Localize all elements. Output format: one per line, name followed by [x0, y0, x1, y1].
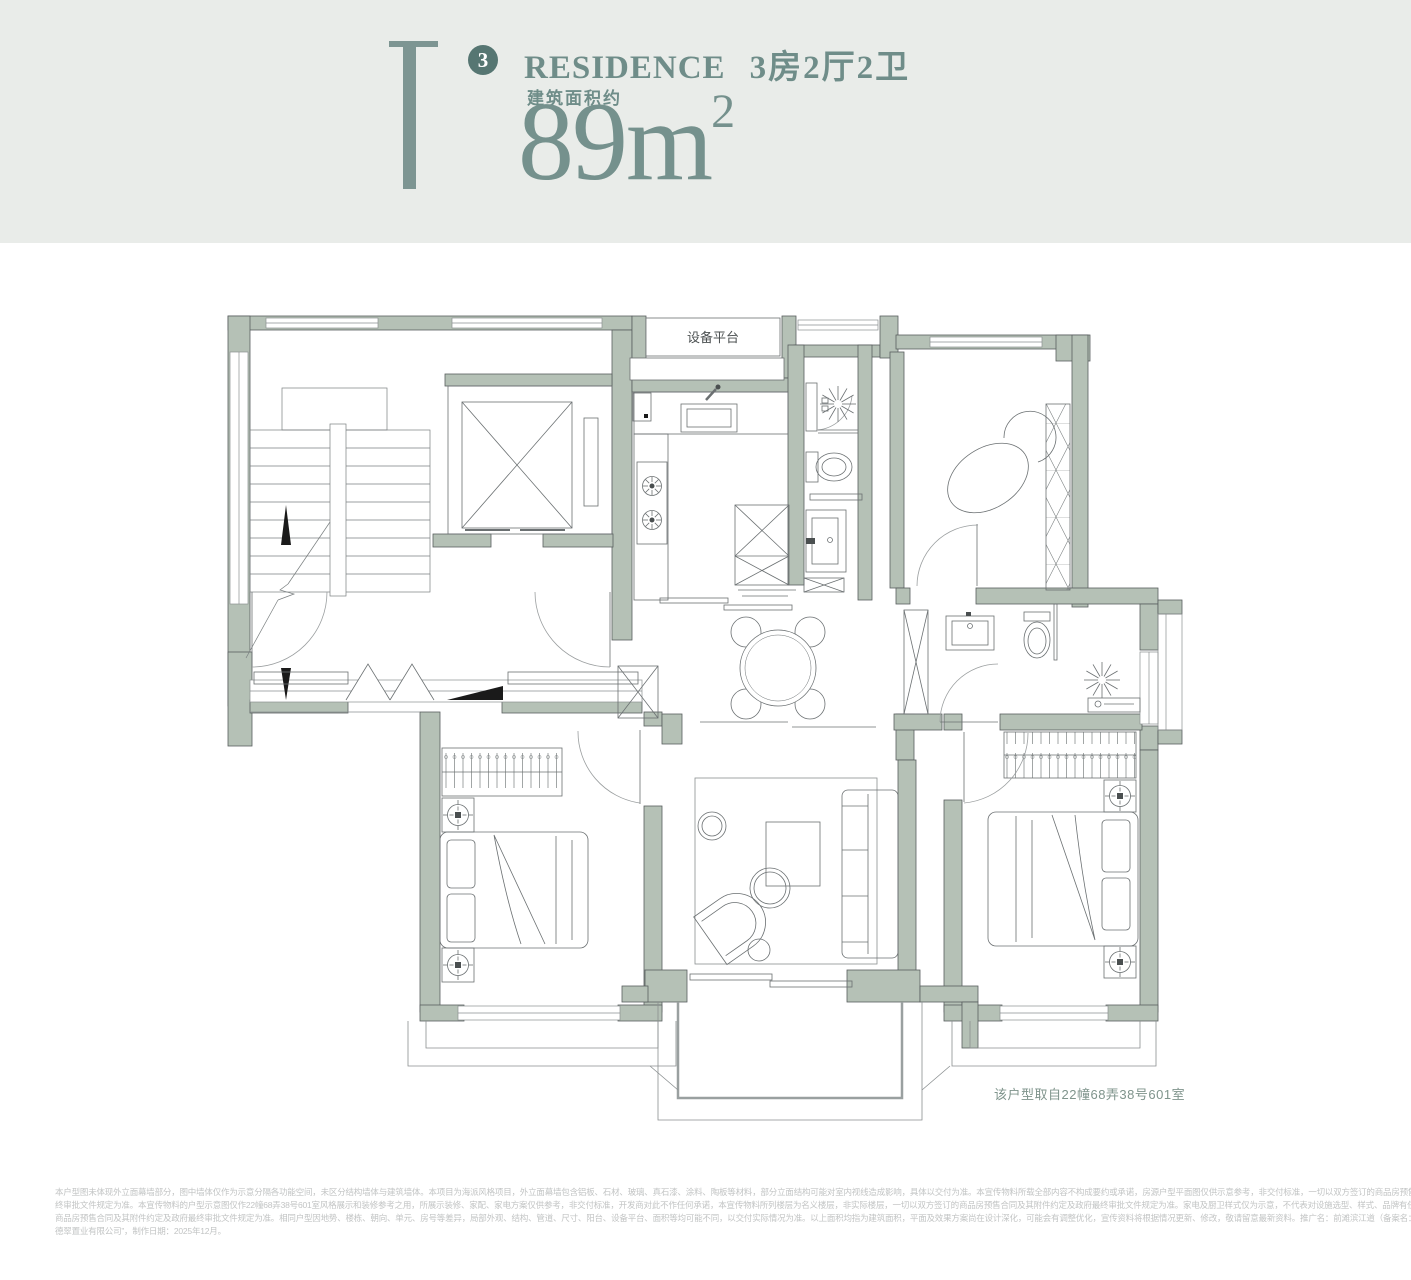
lamp-icon	[1105, 947, 1135, 977]
header-band: 3 RESIDENCE3房2厅2卫 建筑面积约 89m2	[0, 0, 1411, 243]
lamp-icon	[1105, 781, 1135, 811]
door-leaf	[806, 383, 817, 431]
bathroom-right	[940, 604, 1140, 722]
right-platform	[250, 614, 1182, 730]
kitchen-shaft	[735, 505, 789, 585]
floor-plan: 设备平台	[218, 298, 1193, 1143]
washing-machine	[1088, 698, 1140, 712]
staircase	[246, 388, 430, 700]
unit-number: 3	[478, 48, 489, 73]
bathroom-middle	[804, 383, 862, 592]
door-arc	[535, 592, 610, 667]
toilet	[1024, 612, 1050, 658]
bed	[440, 832, 588, 948]
decorative-t-mark-stem	[403, 41, 416, 189]
area-exponent: 2	[711, 85, 735, 138]
pouf	[750, 868, 790, 908]
equipment-platform-label: 设备平台	[687, 330, 739, 345]
coffee-table	[766, 822, 820, 886]
door-arc	[940, 664, 998, 722]
sliding-door	[690, 974, 772, 980]
desk	[935, 429, 1041, 527]
vanity-sink	[806, 510, 846, 572]
balcony	[650, 1002, 950, 1120]
door-arc	[252, 592, 327, 667]
disclaimer: 本户型图未体现外立面幕墙部分，图中墙体仅作为示意分隔各功能空间，未区分结构墙体与…	[55, 1186, 1411, 1238]
drying-rack-icon	[1084, 662, 1120, 698]
dining-area	[618, 617, 825, 719]
stove	[637, 462, 667, 544]
plan-source-caption: 该户型取自22幢68弄38号601室	[994, 1084, 1185, 1103]
lamp-icon	[443, 950, 473, 980]
bedroom-top-right	[917, 404, 1070, 590]
unit-number-badge: 3	[468, 45, 498, 75]
door-arc	[917, 525, 978, 586]
armchair	[694, 882, 777, 964]
pillow	[447, 840, 475, 888]
stool	[748, 939, 770, 961]
pillow	[1102, 820, 1130, 872]
pillow	[447, 894, 475, 942]
living-room	[690, 722, 898, 987]
bed	[988, 812, 1138, 946]
hall-closet	[904, 610, 928, 714]
drying-rack-icon	[820, 386, 856, 422]
sliding-door	[770, 981, 852, 987]
sofa	[842, 790, 898, 958]
door-arc	[578, 731, 640, 803]
elevator	[448, 386, 612, 534]
kitchen-sink	[681, 404, 737, 432]
pillow	[1102, 878, 1130, 930]
lamp-icon	[443, 800, 473, 830]
title-cn: 3房2厅2卫	[750, 50, 911, 86]
floorplan-page: 3 RESIDENCE3房2厅2卫 建筑面积约 89m2	[0, 0, 1411, 1280]
washbasin	[946, 612, 994, 650]
equipment-platform: 设备平台	[630, 318, 784, 380]
disclaimer-line: 德翠置业有限公司”，制作日期：2025年12月。	[55, 1225, 1411, 1238]
disclaimer-line: 本户型图未体现外立面幕墙部分，图中墙体仅作为示意分隔各功能空间，未区分结构墙体与…	[55, 1186, 1411, 1199]
wardrobe-lattice	[1046, 404, 1070, 590]
toilet	[806, 452, 852, 482]
kitchen	[633, 385, 796, 611]
area-value: 89m2	[518, 86, 735, 198]
area-number: 89m	[518, 80, 711, 204]
disclaimer-line: 终审批文件规定为准。本宣传物料的户型示意图仅作22幢68弄38号601室风格展示…	[55, 1199, 1411, 1212]
dining-table	[731, 617, 825, 719]
disclaimer-line: 商品房预售合同及其附件约定及政府最终审批文件规定为准。相同户型因地势、楼栋、朝向…	[55, 1212, 1411, 1225]
